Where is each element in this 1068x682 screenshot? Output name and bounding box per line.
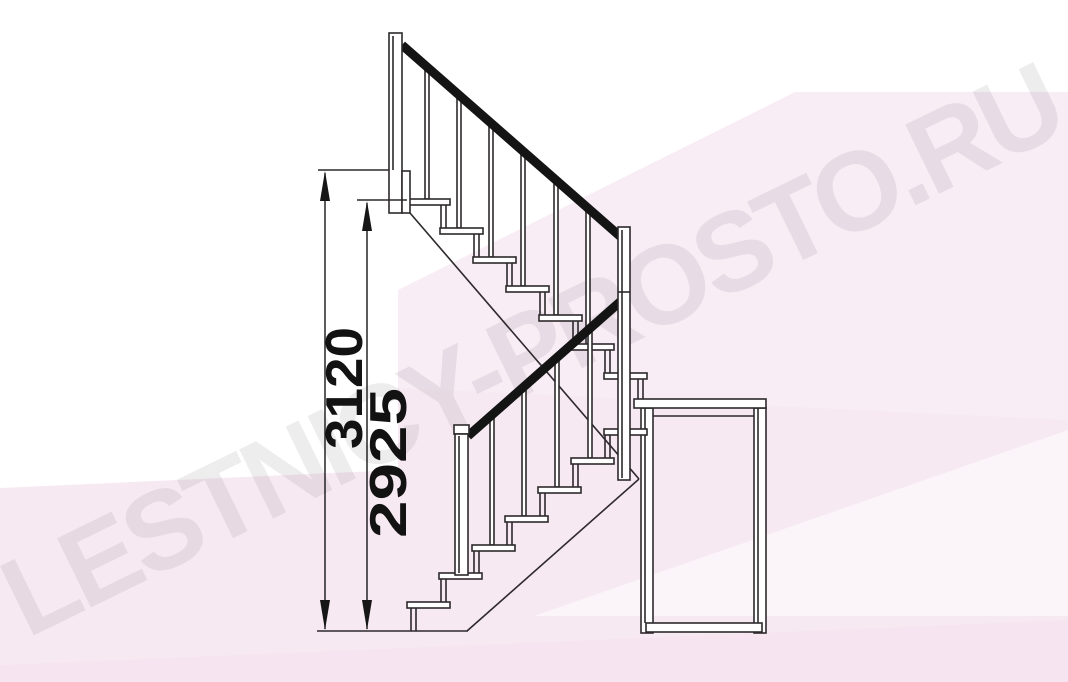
- upper-handrail: [402, 45, 622, 238]
- arrowhead-up: [320, 171, 330, 201]
- platform-frame: [634, 399, 766, 633]
- arrowhead-up: [362, 201, 372, 231]
- staircase-drawing: 3120 2925: [0, 0, 1068, 682]
- arrowhead-down: [362, 600, 372, 630]
- dimension-label-2925: 2925: [360, 388, 418, 538]
- dimension-landing-drop: 2925: [357, 200, 418, 630]
- lower-balusters: [490, 327, 592, 545]
- lower-treads: [407, 429, 647, 608]
- arrowhead-down: [320, 600, 330, 630]
- platform-newel-post: [618, 227, 630, 480]
- bottom-newel-post: [454, 425, 469, 575]
- diagram-canvas: LESTNICY-PROSTO.RU: [0, 0, 1068, 682]
- top-newel-post: [389, 33, 410, 213]
